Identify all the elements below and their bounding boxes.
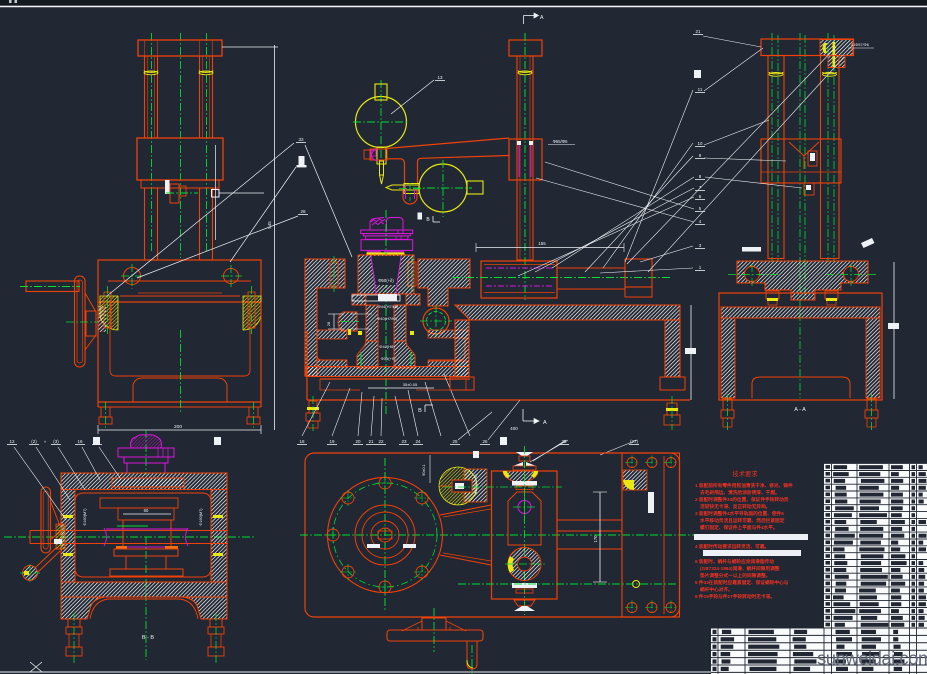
- svg-text:13: 13: [437, 75, 443, 80]
- svg-text:18: 18: [299, 439, 305, 444]
- svg-text:A: A: [540, 15, 544, 21]
- svg-text:12: 12: [9, 439, 15, 444]
- svg-text:26: 26: [482, 439, 488, 444]
- svg-text:活轻快无卡滞、反正转动无异响。: 活轻快无卡滞、反正转动无异响。: [700, 503, 770, 510]
- svg-text:Φ40(H7/f6): Φ40(H7/f6): [377, 316, 398, 321]
- svg-text:3 装配时调整件4水平导轨面的位置、使件6: 3 装配时调整件4水平导轨面的位置、使件6: [695, 510, 784, 517]
- svg-text:155: 155: [538, 241, 546, 246]
- svg-text:24: 24: [415, 439, 421, 444]
- svg-text:23: 23: [401, 439, 407, 444]
- svg-text:蜗杆中心对齐。: 蜗杆中心对齐。: [700, 586, 733, 593]
- svg-text:B: B: [418, 408, 422, 414]
- svg-text:去毛剁飛边、清洗后涂防锈漆、干燃。: 去毛剁飛边、清洗后涂防锈漆、干燃。: [700, 489, 780, 496]
- svg-text:5 件33在装配时应靠紧固定、保证蜗轮中心与: 5 件33在装配时应靠紧固定、保证蜗轮中心与: [695, 579, 789, 586]
- svg-text:28: 28: [326, 321, 331, 326]
- svg-text:水平移动灵活且运转可靠、然后拦紧固定: 水平移动灵活且运转可靠、然后拦紧固定: [699, 517, 785, 524]
- svg-text:Φ160(M7): Φ160(M7): [83, 508, 87, 526]
- svg-text:(2): (2): [31, 439, 37, 444]
- svg-text:Φ55/Φ6: Φ55/Φ6: [553, 139, 569, 144]
- svg-text:(27): (27): [630, 439, 639, 444]
- svg-text:Φ158(H7/f6): Φ158(H7/f6): [474, 474, 478, 494]
- svg-text:螺钉固定、保证件上平面与件4水平。: 螺钉固定、保证件上平面与件4水平。: [700, 524, 778, 531]
- svg-text:Φ160(M7): Φ160(M7): [199, 508, 203, 526]
- svg-text:60: 60: [144, 508, 149, 513]
- svg-text:Φ50(+δ): Φ50(+δ): [378, 278, 394, 283]
- svg-text:(GB7324-1994)润滑、蜗杆间隙用调整: (GB7324-1994)润滑、蜗杆间隙用调整: [700, 565, 780, 572]
- svg-text:11: 11: [698, 87, 703, 92]
- svg-text:技术要求: 技术要求: [732, 469, 758, 478]
- svg-text:170: 170: [593, 535, 598, 543]
- svg-text:35±0.05: 35±0.05: [403, 382, 418, 387]
- svg-text:400: 400: [510, 426, 518, 431]
- svg-text:2 装配时调整件33的位置、保证件手轮转动灵: 2 装配时调整件33的位置、保证件手轮转动灵: [695, 496, 789, 503]
- svg-text:8 件15手轮与件17手轮转动时无卡滞。: 8 件15手轮与件17手轮转动时无卡滞。: [695, 593, 775, 600]
- svg-text:10: 10: [697, 141, 703, 146]
- svg-text:41Φ57/Φ6: 41Φ57/Φ6: [851, 43, 869, 47]
- svg-text:19: 19: [329, 439, 335, 444]
- svg-text:22: 22: [378, 439, 384, 444]
- svg-text:A - A: A - A: [794, 407, 806, 413]
- svg-text:20: 20: [355, 439, 361, 444]
- svg-text:6 装配时、蜗杆与蜗轮应涂润滑脂传动: 6 装配时、蜗杆与蜗轮应涂润滑脂传动: [695, 558, 774, 565]
- svg-text:25: 25: [452, 439, 458, 444]
- svg-text:90±0.1: 90±0.1: [422, 464, 426, 476]
- svg-text:Φ44(H7/k6): Φ44(H7/k6): [378, 304, 399, 309]
- svg-text:Φ35(+δ): Φ35(+δ): [381, 356, 397, 361]
- svg-text:200: 200: [174, 424, 182, 430]
- svg-text:16: 16: [77, 439, 83, 444]
- svg-text:sunweidai.com: sunweidai.com: [817, 648, 927, 669]
- svg-text:1 装配前所有零件用煎油清洗干净、修光、铸件: 1 装配前所有零件用煎油清洗干净、修光、铸件: [695, 482, 793, 489]
- svg-text:33: 33: [298, 137, 304, 142]
- svg-text:A: A: [543, 420, 547, 426]
- svg-text:(3): (3): [53, 439, 59, 444]
- svg-text:21: 21: [368, 439, 374, 444]
- svg-text:4 装配时传动要求运转灵活、可靠。: 4 装配时传动要求运转灵活、可靠。: [695, 543, 769, 550]
- svg-text:28: 28: [300, 209, 306, 214]
- svg-text:B - B: B - B: [142, 635, 155, 641]
- svg-text:垫片调整分式一以上的间隙调整。: 垫片调整分式一以上的间隙调整。: [700, 572, 770, 579]
- svg-text:21: 21: [695, 29, 701, 34]
- svg-text:Φ42(H8): Φ42(H8): [379, 344, 395, 349]
